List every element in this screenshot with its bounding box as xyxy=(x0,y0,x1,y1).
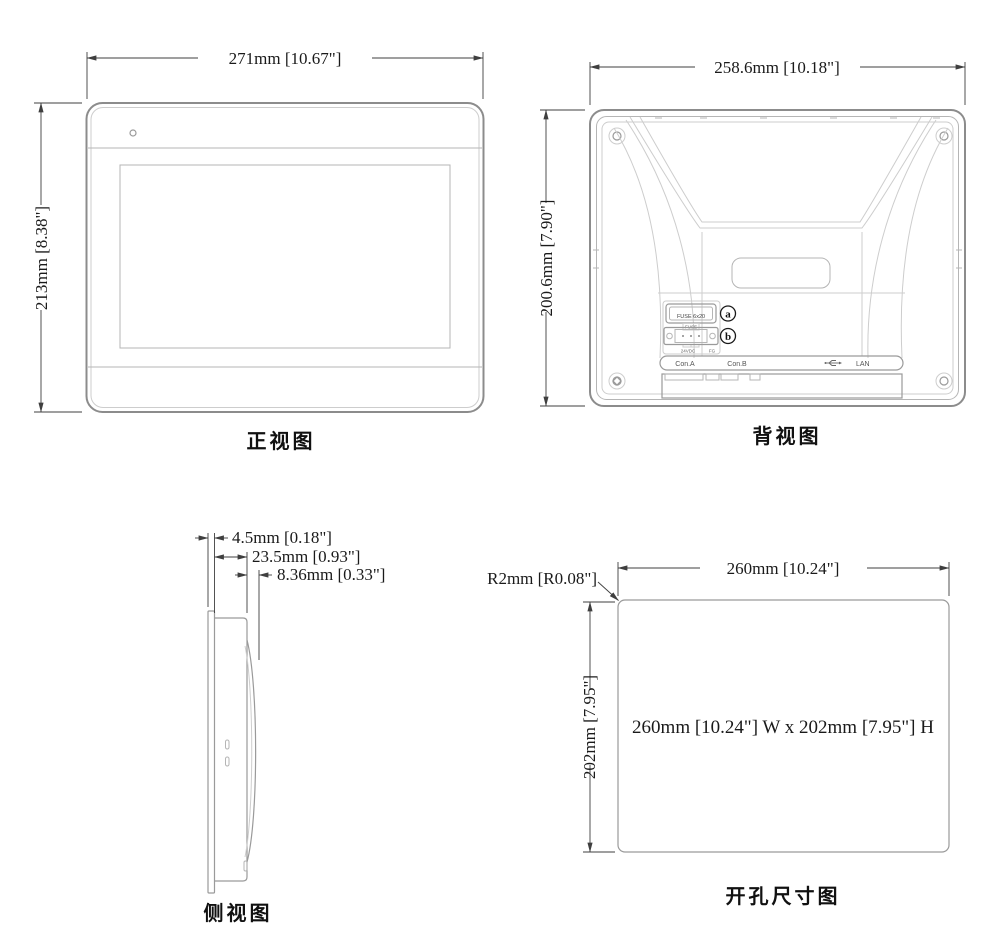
back-view: FUSE 6x20 FUSE 24VDC FG a b Con.A Con.B xyxy=(537,58,965,448)
cutout-view: 260mm [10.24"] W x 202mm [7.95"] H 260mm… xyxy=(487,559,949,908)
back-center-recess xyxy=(732,258,830,288)
cutout-center-text: 260mm [10.24"] W x 202mm [7.95"] H xyxy=(632,717,934,738)
front-width-dimension: 271mm [10.67"] xyxy=(87,49,483,99)
drawing-canvas: 271mm [10.67"] 213mm [8.38"] 正视图 xyxy=(0,0,987,945)
cutout-height-dim-text: 202mm [7.95"] xyxy=(580,675,599,779)
cutout-height-dimension: 202mm [7.95"] xyxy=(580,602,615,852)
front-width-dim-text: 271mm [10.67"] xyxy=(229,49,342,68)
front-height-dim-text: 213mm [8.38"] xyxy=(32,206,51,310)
back-view-label: 背视图 xyxy=(753,424,822,448)
port-lan-label: LAN xyxy=(856,361,870,368)
cutout-view-label: 开孔尺寸图 xyxy=(726,885,841,908)
fuse-box-label: FUSE 6x20 xyxy=(677,314,705,320)
back-width-dimension: 258.6mm [10.18"] xyxy=(590,58,965,105)
mechanical-drawing-sheet: 271mm [10.67"] 213mm [8.38"] 正视图 xyxy=(0,0,987,945)
power-24vdc-label: 24VDC xyxy=(681,349,696,354)
port-con-b-label: Con.B xyxy=(727,361,747,368)
front-panel-outline xyxy=(87,103,484,412)
power-led xyxy=(130,130,136,136)
callout-a-text: a xyxy=(725,309,731,321)
usb-icon xyxy=(825,361,843,366)
port-con-a-label: Con.A xyxy=(675,361,695,368)
front-height-dimension: 213mm [8.38"] xyxy=(32,103,82,412)
cutout-width-dim-text: 260mm [10.24"] xyxy=(727,559,840,578)
cutout-radius-callout: R2mm [R0.08"] xyxy=(487,569,618,601)
front-panel-inner-line xyxy=(91,108,479,408)
screw-bottom-left xyxy=(613,377,621,385)
side-slot-2 xyxy=(226,757,230,766)
front-view: 271mm [10.67"] 213mm [8.38"] 正视图 xyxy=(32,49,484,453)
side-view-label: 侧视图 xyxy=(204,901,273,925)
edge-tick-marks xyxy=(593,118,962,268)
side-slot-1 xyxy=(226,740,230,749)
front-screen xyxy=(120,165,450,348)
side-slot-3 xyxy=(244,861,247,871)
power-fg-label: FG xyxy=(709,349,716,354)
back-molding-curves xyxy=(614,117,948,358)
screw-bottom-right xyxy=(940,377,948,385)
front-view-label: 正视图 xyxy=(247,430,316,453)
back-height-dim-text: 200.6mm [7.90"] xyxy=(537,200,556,317)
side-bezel-flange xyxy=(208,611,215,893)
side-dim-rear-text: 8.36mm [0.33"] xyxy=(277,565,385,584)
cutout-width-dimension: 260mm [10.24"] xyxy=(618,559,949,596)
side-view: 4.5mm [0.18"] 23.5mm [0.93"] 8.36mm [0.3… xyxy=(195,528,385,925)
side-dim-bezel-text: 4.5mm [0.18"] xyxy=(232,528,332,547)
back-width-dim-text: 258.6mm [10.18"] xyxy=(714,58,839,77)
side-dim-depth-text: 23.5mm [0.93"] xyxy=(252,547,360,566)
connector-label-strip: Con.A Con.B LAN xyxy=(660,356,903,370)
fuse-and-power-block: FUSE 6x20 FUSE 24VDC FG a b xyxy=(663,301,736,354)
callout-b-text: b xyxy=(725,331,731,343)
side-body-outline xyxy=(215,618,248,881)
side-dimensions: 4.5mm [0.18"] 23.5mm [0.93"] 8.36mm [0.3… xyxy=(195,528,385,660)
cutout-radius-dim-text: R2mm [R0.08"] xyxy=(487,569,597,588)
back-height-dimension: 200.6mm [7.90"] xyxy=(537,110,585,406)
side-rear-inner-curve xyxy=(245,646,252,857)
